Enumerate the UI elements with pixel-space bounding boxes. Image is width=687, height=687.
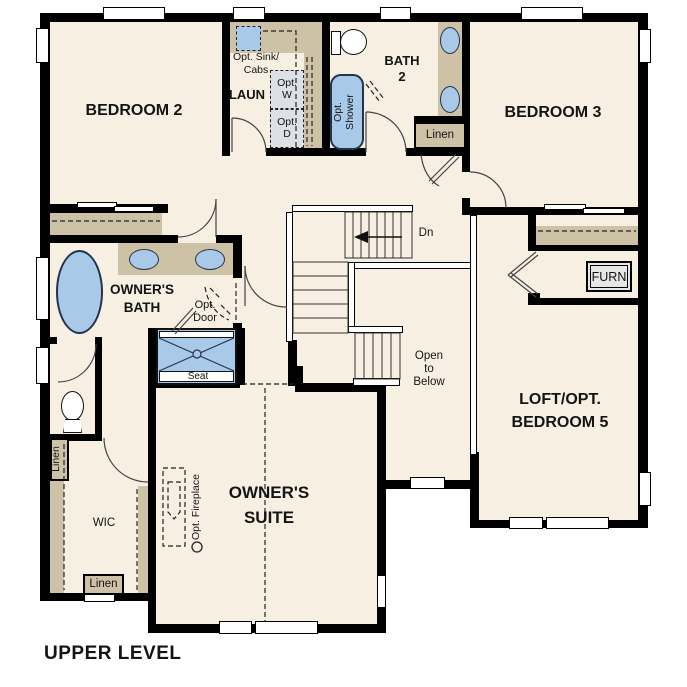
furn-door-leaf-1b [511,255,538,277]
bath2-label-line2: 2 [378,70,426,85]
bedroom2-door-arc [178,199,216,237]
page-title: UPPER LEVEL [44,643,254,664]
bedroom3-label: BEDROOM 3 [488,104,618,122]
stair-left-flight [293,262,348,333]
hall-door-leaf-b [432,157,459,184]
open-to-below-label: Open to Below [399,350,459,389]
opt-shower-line2: Shower [345,77,357,147]
opt-shower-line1: Opt. [333,77,345,147]
stairs-dn-label: Dn [412,227,440,240]
opt-fireplace-inner [168,482,180,519]
bedroom3-door-arc [470,172,506,208]
bedroom2-label: BEDROOM 2 [69,102,199,120]
opt-fireplace-label: Opt. Fireplace [191,464,205,550]
bath2-door-arc [366,112,406,152]
stair-lower-flight [355,333,400,379]
furn-door-leaf-2b [511,273,538,294]
opt-sink-label-line2: Cabs [220,65,292,77]
open-below-line1: Open [399,350,459,363]
bath2-opt-shower-door-dash-1 [366,84,380,102]
bath2-label-line1: BATH [378,54,426,69]
open-below-line3: Below [399,376,459,389]
opt-door-label-line1: Opt. [183,299,227,311]
bath-corridor-door-arc [245,266,287,307]
wc-door-arc [58,344,96,382]
hall-linen-label: Linen [51,437,67,481]
owners-bath-label-line1: OWNER'S [96,282,188,297]
furn-door-leaf-1a [508,252,536,275]
opt-door-label-line2: Door [183,312,227,324]
loft-label-line1: LOFT/OPT. [485,391,635,409]
opt-sink-label-line1: Opt. Sink/ [220,52,292,64]
hall-door-leaf-a [429,154,456,181]
hall-door-arc [421,155,439,186]
furn-door-leaf-2a [508,275,536,297]
bath2-opt-shower-label: Opt. Shower [333,77,361,147]
wic-door-arc [104,438,148,482]
owners-suite-label-line1: OWNER'S [200,483,338,502]
stair-upper-flight [345,212,412,258]
floorplan-upper-level: Opt. W Opt. D Linen Linen FURN [0,0,687,687]
laundry-door-arc [232,118,266,152]
opt-fireplace-outline [163,468,185,546]
owners-bath-label-line2: BATH [96,300,188,315]
loft-label-line2: BEDROOM 5 [485,414,635,432]
open-below-line2: to [399,363,459,376]
shower-seat-label: Seat [178,371,218,382]
owners-shower-pan [159,338,234,371]
owners-suite-label-line2: SUITE [200,508,338,527]
laundry-label: LAUN [224,88,270,103]
wic-label: WIC [86,517,122,530]
opt-door-leaf-dash-1 [210,288,221,299]
